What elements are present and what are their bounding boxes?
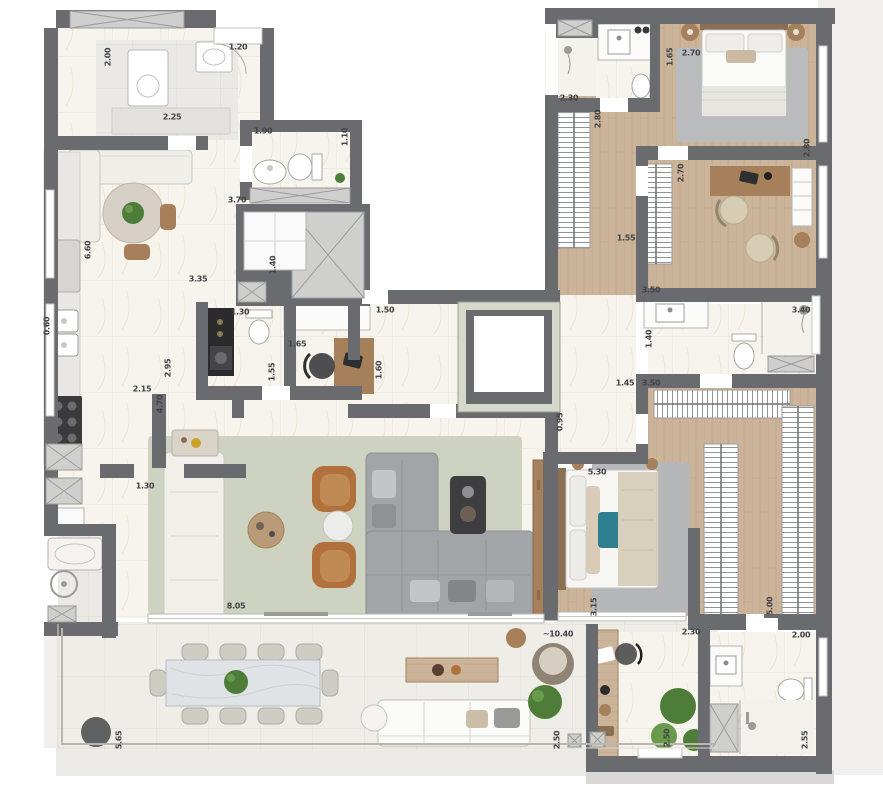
bed-blanket [618,472,658,586]
plant [651,723,677,749]
mbath-toilet [734,343,754,369]
stool-chair [615,643,637,665]
small-plant [335,173,345,183]
floor-plan-svg [0,0,883,801]
marble-coffee-table [450,476,486,534]
shaft [768,356,814,372]
outdoor-sofa [378,700,530,746]
plant [660,688,696,724]
bed-headboard [558,468,566,590]
window [819,638,827,696]
stool [124,244,150,260]
powder-sink [254,160,286,184]
hanging-chair [532,643,574,685]
table-centerpiece-plant [224,670,248,694]
shower-head [564,46,572,54]
elevator [458,302,560,412]
shower-head [748,722,756,730]
elevator-door [484,394,534,404]
shower1-floor [558,38,596,96]
suite-corridor-floor [558,295,636,457]
sliding-doors [148,612,686,623]
vanity-sink [215,352,227,364]
master-bedroom [558,458,658,590]
shaft [48,606,76,622]
hall-closet [558,112,590,248]
knot-pouf [361,705,387,731]
bath2-toilet [778,679,804,701]
wash-tub [48,538,102,570]
shaft [46,478,82,504]
bed1-blanket [702,86,786,116]
column [81,717,111,747]
plant-pot [528,685,562,719]
shaft [70,11,184,28]
office-chair [720,196,748,224]
window [819,166,827,258]
shower-head [799,305,809,315]
shaft [558,20,592,36]
armchair [312,542,356,588]
office-chair [746,234,774,262]
wc-toilet [249,320,269,344]
window [819,46,827,142]
table-plant [122,202,144,224]
bath1-sink [608,30,630,54]
window [812,296,820,354]
stool [160,204,176,230]
side-table [794,232,810,248]
floor-plan: 2.002.251.201.901.103.706.600.603.351.30… [0,0,883,801]
wood-coffee-table [248,512,284,548]
laundry-counter [112,108,230,134]
bath1-toilet [632,74,650,98]
window [46,304,54,416]
shaft [46,444,82,470]
side-table-round [323,511,353,541]
mbath-sink [656,304,684,322]
shaft [568,734,581,747]
armchair [312,466,356,512]
toilet-bowl [288,154,312,180]
bookshelf [792,168,812,226]
elevator-cab [474,316,544,392]
toilet-tank [312,154,322,180]
laundry-sink [196,42,232,72]
desk-chair [309,353,335,379]
window [46,190,54,278]
shaft [238,282,266,302]
shaft [250,188,350,203]
washing-machine [128,50,168,106]
side-table [506,628,526,648]
